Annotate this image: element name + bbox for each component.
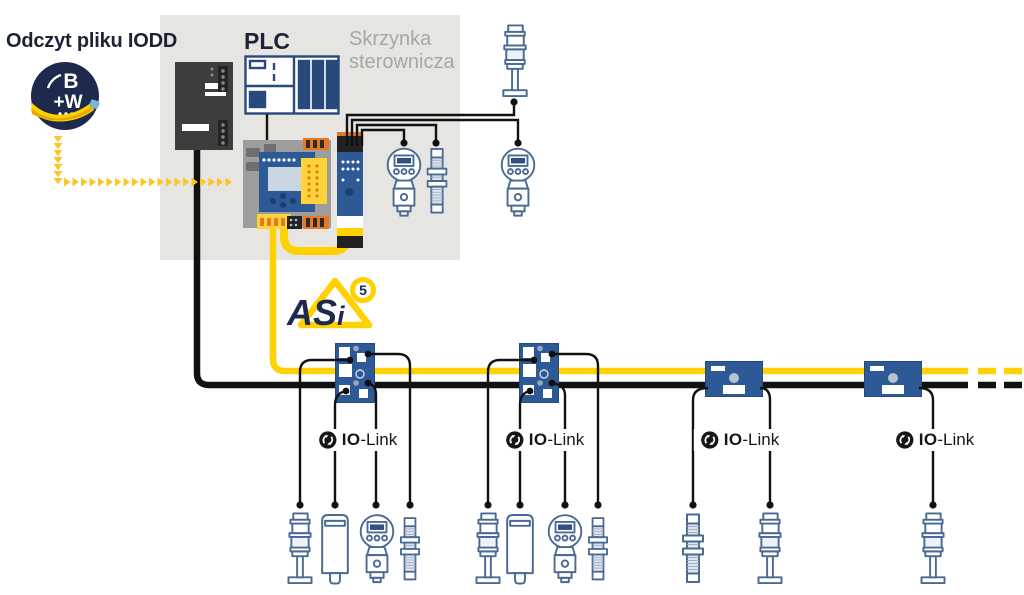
asi5-gateway-icon: [243, 138, 333, 230]
svg-text:B: B: [63, 70, 78, 93]
iolink-logo-icon: [506, 431, 524, 449]
asi5-module-icon: [864, 361, 922, 397]
pressure-sensor-icon: [359, 512, 395, 585]
signal-tower-icon: [918, 512, 948, 585]
pressure-sensor-icon: [547, 512, 583, 585]
asi5-logo-icon: AS i 5: [285, 274, 385, 332]
signal-tower-icon: [500, 24, 530, 98]
asi5-iolink-master-module-icon: [335, 128, 365, 248]
iolink-label-1: IO-Link: [312, 429, 404, 451]
svg-text:AS: AS: [286, 292, 337, 333]
svg-text:+W: +W: [53, 92, 82, 113]
asi5-iolink-module-icon: [519, 343, 559, 403]
iolink-logo-icon: [896, 431, 914, 449]
bw-software-logo-icon: B +W: [28, 60, 102, 134]
signal-tower-icon: [285, 512, 315, 585]
level-sensor-icon: [320, 512, 350, 585]
proximity-sensor-icon: [588, 514, 608, 584]
iodd-file-label: Odczyt pliku IODD: [6, 30, 177, 53]
cabinet-label: Skrzynka sterownicza: [349, 28, 455, 74]
svg-text:i: i: [337, 301, 345, 331]
pressure-sensor-icon: [386, 146, 422, 218]
svg-text:5: 5: [359, 282, 367, 298]
iolink-logo-icon: [319, 431, 337, 449]
iolink-label-3: IO-Link: [694, 429, 786, 451]
level-sensor-icon: [505, 512, 535, 585]
diagram-stage: Odczyt pliku IODD PLC Skrzynka sterownic…: [0, 0, 1024, 595]
proximity-sensor-icon: [426, 148, 448, 214]
signal-tower-icon: [755, 512, 785, 585]
proximity-sensor-icon: [682, 512, 704, 585]
plc-icon: [244, 55, 340, 115]
asi5-module-icon: [705, 361, 763, 397]
asi5-iolink-module-icon: [335, 343, 375, 403]
pressure-sensor-icon: [500, 146, 536, 218]
iolink-label-4: IO-Link: [889, 429, 981, 451]
proximity-sensor-icon: [400, 514, 420, 584]
signal-tower-icon: [473, 512, 503, 585]
power-supply-icon: [175, 60, 233, 152]
plc-label: PLC: [244, 28, 290, 55]
iolink-logo-icon: [701, 431, 719, 449]
iolink-label-2: IO-Link: [499, 429, 591, 451]
